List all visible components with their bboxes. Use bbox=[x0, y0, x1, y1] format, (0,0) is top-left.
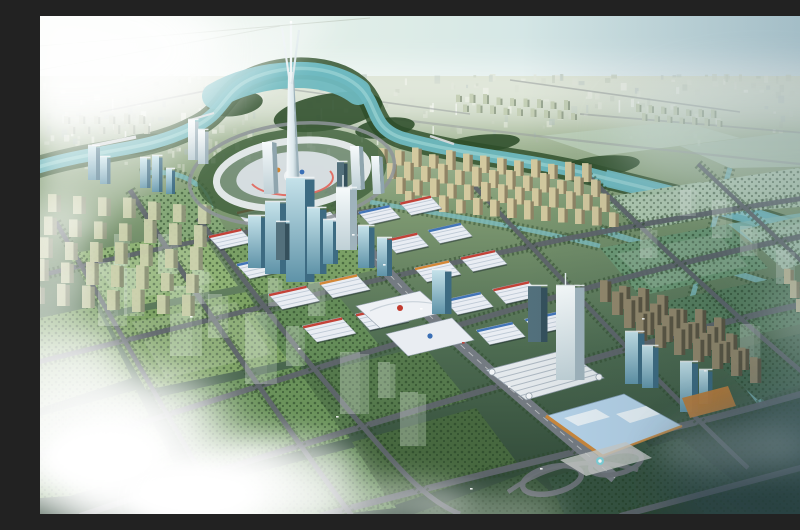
residential-tower-side bbox=[514, 99, 516, 106]
residential-tower bbox=[165, 249, 174, 268]
glass-tower bbox=[248, 216, 261, 268]
residential-tower bbox=[136, 265, 145, 289]
tower-cap bbox=[265, 201, 288, 203]
residential-tower bbox=[144, 219, 153, 243]
tower-side bbox=[369, 228, 375, 269]
residential-tower-side bbox=[182, 205, 186, 222]
residential-tower bbox=[464, 184, 471, 200]
glass-tower bbox=[358, 226, 369, 268]
ghost-building bbox=[245, 312, 267, 384]
residential-tower-side bbox=[508, 109, 510, 115]
far-building bbox=[233, 128, 237, 134]
residential-tower bbox=[111, 265, 120, 287]
corner-pavilion bbox=[489, 369, 495, 375]
residential-tower bbox=[107, 290, 116, 310]
residential-tower-side bbox=[174, 250, 178, 268]
residential-tower-side bbox=[488, 183, 491, 201]
residential-tower bbox=[132, 289, 141, 312]
residential-tower bbox=[148, 202, 157, 221]
residential-tower bbox=[470, 94, 474, 103]
residential-tower-side bbox=[166, 296, 170, 314]
glass-tower bbox=[432, 270, 445, 314]
tower-cap bbox=[336, 187, 357, 189]
residential-tower bbox=[169, 223, 178, 245]
residential-tower bbox=[498, 184, 505, 203]
residential-tower bbox=[140, 244, 149, 266]
residential-tower-side bbox=[445, 165, 448, 184]
far-building bbox=[219, 125, 224, 133]
tower-cap bbox=[337, 161, 348, 163]
residential-tower-side bbox=[453, 151, 456, 170]
car bbox=[462, 342, 465, 344]
residential-tower bbox=[455, 170, 462, 185]
ghost-building-side bbox=[360, 354, 369, 414]
residential-tower bbox=[430, 178, 437, 197]
residential-tower bbox=[115, 242, 124, 264]
residential-tower bbox=[186, 274, 195, 293]
ghost-building-side bbox=[267, 314, 277, 384]
residential-tower-side bbox=[437, 180, 440, 198]
residential-tower-side bbox=[454, 185, 457, 199]
residential-tower bbox=[119, 223, 128, 241]
residential-tower bbox=[497, 97, 501, 105]
residential-tower-side bbox=[153, 220, 157, 243]
residential-tower-side bbox=[124, 243, 128, 264]
residential-tower bbox=[429, 154, 436, 168]
tower-cap bbox=[323, 219, 338, 221]
residential-tower-side bbox=[95, 263, 99, 285]
residential-tower bbox=[173, 204, 182, 222]
residential-tower-side bbox=[474, 95, 476, 103]
residential-tower-side bbox=[497, 201, 500, 217]
residential-tower-side bbox=[149, 245, 153, 266]
grade-right bbox=[520, 16, 800, 514]
ghost-building bbox=[400, 392, 418, 446]
far-building bbox=[208, 139, 212, 149]
residential-tower bbox=[404, 162, 411, 181]
ghost-building-side bbox=[390, 364, 395, 398]
aerial-rendering: Aerial architectural rendering of a plan… bbox=[40, 16, 800, 514]
color-grade bbox=[520, 16, 800, 514]
ghost-building-side bbox=[418, 394, 426, 446]
residential-tower-side bbox=[446, 197, 449, 213]
residential-tower bbox=[456, 95, 460, 102]
silver-tower bbox=[262, 142, 274, 194]
residential-tower-side bbox=[120, 266, 124, 287]
residential-tower bbox=[447, 184, 454, 199]
residential-tower-side bbox=[170, 274, 174, 291]
ghost-building bbox=[286, 326, 299, 366]
dark-tower bbox=[276, 222, 285, 260]
residential-tower-side bbox=[467, 106, 469, 112]
residential-tower-side bbox=[99, 243, 103, 262]
mall-sign bbox=[427, 333, 432, 338]
glass-tower bbox=[377, 238, 387, 276]
ghost-building-side bbox=[204, 272, 209, 304]
far-building bbox=[182, 164, 184, 172]
residential-tower bbox=[396, 177, 403, 194]
residential-tower bbox=[483, 94, 487, 104]
residential-tower-side bbox=[199, 248, 203, 270]
residential-tower bbox=[477, 104, 481, 113]
residential-tower-side bbox=[494, 107, 496, 114]
residential-tower-side bbox=[116, 291, 120, 310]
tower-cap bbox=[377, 237, 392, 239]
residential-tower bbox=[507, 198, 514, 218]
car bbox=[352, 234, 355, 236]
residential-tower-side bbox=[203, 226, 207, 247]
residential-tower-side bbox=[420, 181, 423, 196]
ghost-building-side bbox=[222, 296, 228, 338]
residential-tower-side bbox=[481, 106, 483, 113]
glass-tower bbox=[307, 208, 320, 274]
tower-cap bbox=[307, 207, 327, 209]
ghost-building-side bbox=[299, 328, 305, 366]
tower-side bbox=[285, 224, 290, 261]
residential-tower-side bbox=[157, 203, 161, 220]
residential-tower bbox=[421, 166, 428, 182]
residential-tower bbox=[161, 273, 170, 291]
residential-tower-side bbox=[145, 266, 149, 289]
residential-tower bbox=[190, 246, 199, 270]
tower-side bbox=[350, 190, 357, 251]
tower-side bbox=[387, 240, 392, 277]
residential-tower bbox=[510, 98, 514, 106]
residential-tower bbox=[90, 242, 99, 262]
white-tower bbox=[336, 188, 350, 250]
residential-tower bbox=[472, 167, 479, 187]
car bbox=[383, 264, 386, 266]
tower-cap bbox=[286, 177, 315, 179]
scene-svg bbox=[40, 16, 800, 514]
residential-tower bbox=[182, 295, 191, 316]
residential-tower-side bbox=[501, 99, 503, 105]
car bbox=[298, 348, 301, 350]
ghost-building bbox=[208, 294, 222, 338]
residential-tower-side bbox=[141, 290, 145, 312]
residential-tower bbox=[504, 108, 508, 115]
ghost-building bbox=[378, 362, 390, 398]
tower-side bbox=[172, 171, 175, 195]
glass-tower bbox=[323, 220, 333, 264]
tower-cap bbox=[432, 269, 452, 271]
residential-tower-side bbox=[471, 186, 474, 200]
car bbox=[420, 308, 423, 310]
residential-tower bbox=[463, 154, 470, 172]
residential-tower bbox=[194, 225, 203, 247]
residential-tower-side bbox=[191, 296, 195, 316]
residential-tower-side bbox=[480, 199, 483, 215]
residential-tower-side bbox=[463, 201, 466, 214]
residential-tower-side bbox=[195, 275, 199, 293]
residential-tower bbox=[481, 182, 488, 202]
ghost-building bbox=[340, 352, 360, 414]
tower-side bbox=[445, 272, 452, 315]
residential-tower-side bbox=[462, 171, 465, 185]
residential-tower-side bbox=[178, 224, 182, 245]
residential-tower bbox=[456, 199, 463, 213]
residential-tower bbox=[157, 295, 166, 314]
car bbox=[336, 416, 339, 418]
plaza-dot bbox=[300, 170, 305, 175]
residential-tower bbox=[490, 200, 497, 217]
tower-cap bbox=[276, 221, 290, 223]
residential-tower-side bbox=[514, 199, 517, 218]
residential-tower-side bbox=[128, 225, 132, 242]
tower-cap bbox=[248, 215, 268, 217]
residential-tower-side bbox=[411, 163, 414, 181]
residential-tower-side bbox=[487, 95, 489, 104]
residential-tower-side bbox=[419, 149, 422, 167]
residential-tower-side bbox=[460, 96, 462, 102]
residential-tower bbox=[490, 105, 494, 114]
car bbox=[190, 316, 193, 318]
mall-sign bbox=[397, 305, 403, 311]
far-building bbox=[178, 164, 181, 168]
car bbox=[508, 386, 511, 388]
tower-cap bbox=[358, 225, 375, 227]
residential-tower bbox=[473, 198, 480, 215]
car bbox=[470, 488, 473, 490]
residential-tower bbox=[463, 105, 467, 113]
